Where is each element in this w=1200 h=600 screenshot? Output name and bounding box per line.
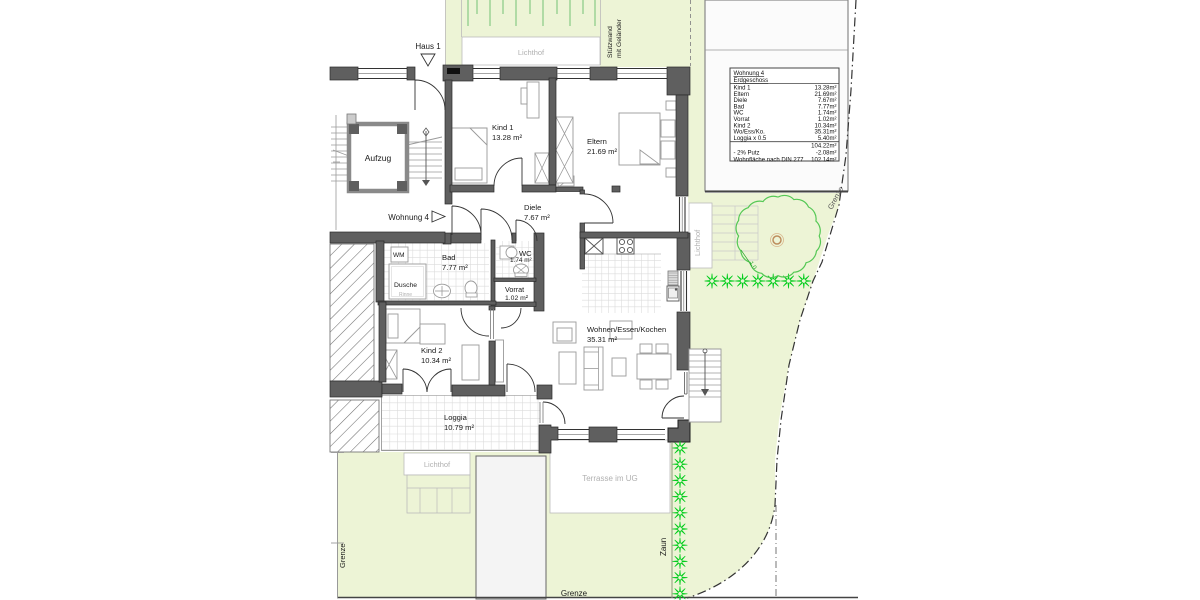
svg-text:102.14m²: 102.14m²: [811, 157, 836, 163]
svg-text:WC: WC: [734, 111, 745, 117]
svg-text:Loggia: Loggia: [444, 413, 468, 422]
svg-text:1.02 m²: 1.02 m²: [505, 295, 529, 302]
svg-text:7.77m²: 7.77m²: [818, 104, 837, 110]
svg-text:Rinne: Rinne: [399, 292, 412, 298]
svg-text:10.34m²: 10.34m²: [814, 123, 836, 129]
svg-text:Bad: Bad: [442, 253, 456, 262]
svg-text:Haus 1: Haus 1: [415, 42, 441, 51]
svg-text:Stützwand: Stützwand: [607, 26, 614, 58]
svg-text:1.74 m²: 1.74 m²: [510, 257, 532, 264]
svg-text:10.34 m²: 10.34 m²: [421, 356, 451, 365]
svg-text:Diele: Diele: [524, 203, 541, 212]
svg-text:mit Geländer: mit Geländer: [616, 18, 623, 58]
svg-text:- 2% Putz: - 2% Putz: [734, 150, 760, 156]
svg-text:Vorrat: Vorrat: [505, 285, 524, 294]
svg-text:21.69 m²: 21.69 m²: [587, 147, 617, 156]
svg-text:Kind 2: Kind 2: [734, 123, 752, 129]
svg-text:Lichthof: Lichthof: [518, 48, 545, 57]
svg-text:7.77 m²: 7.77 m²: [442, 263, 468, 272]
svg-text:Grenze: Grenze: [338, 543, 347, 568]
svg-text:Loggia x 0.5: Loggia x 0.5: [734, 136, 767, 142]
svg-text:Diele: Diele: [734, 98, 748, 104]
svg-text:1.02m²: 1.02m²: [818, 117, 837, 123]
svg-text:7.67m²: 7.67m²: [818, 98, 837, 104]
svg-text:Wohnung 4: Wohnung 4: [734, 71, 765, 77]
svg-text:1.74m²: 1.74m²: [818, 111, 837, 117]
svg-text:10.79 m²: 10.79 m²: [444, 423, 474, 432]
svg-text:7.67 m²: 7.67 m²: [524, 213, 550, 222]
svg-text:Wohnen/Essen/Kochen: Wohnen/Essen/Kochen: [587, 325, 666, 334]
svg-text:Dusche: Dusche: [394, 282, 417, 289]
svg-text:Wohnung 4: Wohnung 4: [388, 213, 429, 222]
svg-text:Kind 2: Kind 2: [421, 346, 443, 355]
svg-text:13.28 m²: 13.28 m²: [492, 133, 522, 142]
svg-text:Grenze: Grenze: [561, 589, 588, 598]
svg-text:Wo/Ess/Ko.: Wo/Ess/Ko.: [734, 130, 766, 136]
svg-text:Eltern: Eltern: [734, 92, 750, 98]
svg-text:Zaun: Zaun: [659, 538, 668, 556]
svg-text:Wohnfläche nach DIN 277: Wohnfläche nach DIN 277: [734, 157, 805, 163]
svg-text:-2.08m²: -2.08m²: [816, 150, 837, 156]
svg-text:Aufzug: Aufzug: [365, 153, 392, 163]
svg-text:Terrasse im UG: Terrasse im UG: [582, 474, 638, 483]
svg-text:Bad: Bad: [734, 104, 745, 110]
svg-text:Kind 1: Kind 1: [734, 86, 752, 92]
svg-text:Kind 1: Kind 1: [492, 123, 514, 132]
svg-text:21.69m²: 21.69m²: [814, 92, 836, 98]
svg-text:Vorrat: Vorrat: [734, 117, 750, 123]
svg-text:Eltern: Eltern: [587, 137, 607, 146]
svg-text:Lichthof: Lichthof: [424, 460, 451, 469]
svg-text:Lichthof: Lichthof: [693, 229, 702, 256]
svg-text:5.40m²: 5.40m²: [818, 136, 837, 142]
svg-text:13.28m²: 13.28m²: [814, 86, 836, 92]
svg-text:35.31 m²: 35.31 m²: [587, 335, 617, 344]
svg-text:104.22m²: 104.22m²: [811, 143, 836, 149]
svg-text:WM: WM: [393, 252, 405, 259]
svg-text:35.31m²: 35.31m²: [814, 130, 836, 136]
